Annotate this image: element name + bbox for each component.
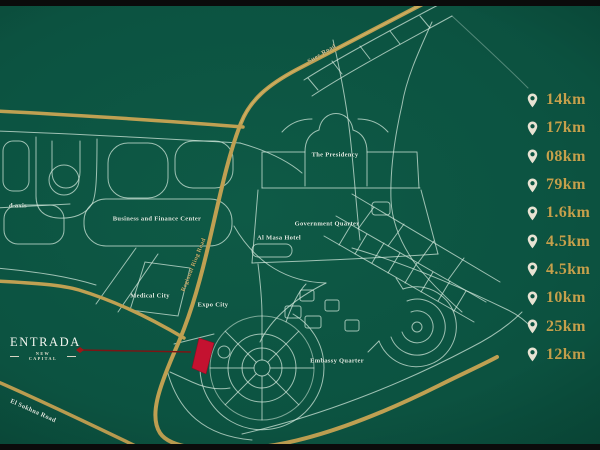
distance-list: 14km 17km 08km 79km 1.6km 4.5km 4.5km 1 <box>527 86 599 369</box>
map-pin-icon <box>527 121 538 136</box>
horseshoe-block <box>36 137 97 218</box>
distance-item: 1.6km <box>527 199 599 227</box>
expo-city-block <box>200 264 359 430</box>
letterbox-top <box>0 0 600 6</box>
distance-item: 4.5km <box>527 256 599 284</box>
axis-road-path <box>0 111 243 127</box>
entrada-plot-group <box>76 338 214 374</box>
distance-item: 4.5km <box>527 227 599 255</box>
distance-value: 17km <box>546 119 586 137</box>
entrada-location-map: Suez Road Regional Ring Road El Sokhna R… <box>0 0 600 450</box>
distance-value: 4.5km <box>546 261 590 279</box>
map-label-medical-city: Medical City <box>130 293 170 300</box>
sokhna-road-path <box>0 381 148 450</box>
distance-item: 17km <box>527 114 599 142</box>
street-grid <box>324 194 500 322</box>
map-label-al-masa-hotel: Al Masa Hotel <box>257 235 301 242</box>
map-pin-icon <box>527 178 538 193</box>
logo-ornament-right <box>67 356 76 357</box>
map-pin-icon <box>527 347 538 362</box>
map-label-government-quarter: Government Quarter <box>295 221 360 228</box>
entrada-logo-subtitle: NEW CAPITAL <box>22 351 64 361</box>
map-label-expo-city: Expo City <box>198 302 229 309</box>
map-pin-icon <box>527 149 538 164</box>
map-label-axis-partial: d axis <box>9 203 27 210</box>
map-pin-icon <box>527 234 538 249</box>
entrada-logo-title: ENTRADA <box>10 336 76 349</box>
presidency-block <box>305 114 367 187</box>
distance-value: 25km <box>546 318 586 336</box>
distance-item: 25km <box>527 312 599 340</box>
distance-value: 10km <box>546 289 586 307</box>
distance-value: 1.6km <box>546 204 590 222</box>
map-label-the-presidency: The Presidency <box>312 152 359 159</box>
distance-value: 08km <box>546 148 586 166</box>
distance-value: 12km <box>546 346 586 364</box>
distance-item: 79km <box>527 171 599 199</box>
logo-ornament-left <box>10 356 19 357</box>
distance-item: 10km <box>527 284 599 312</box>
map-pin-icon <box>527 93 538 108</box>
distance-value: 4.5km <box>546 233 590 251</box>
distance-value: 79km <box>546 176 586 194</box>
map-label-business-finance-center: Business and Finance Center <box>113 216 201 223</box>
distance-value: 14km <box>546 91 586 109</box>
map-label-embassy-quarter: Embassy Quarter <box>310 358 364 365</box>
map-pin-icon <box>527 291 538 306</box>
entrada-logo: ENTRADA NEW CAPITAL <box>10 336 76 361</box>
map-pin-icon <box>527 262 538 277</box>
entrada-plot-marker <box>192 338 214 374</box>
distance-item: 12km <box>527 341 599 369</box>
letterbox-bottom <box>0 444 600 450</box>
map-pin-icon <box>527 206 538 221</box>
government-quarter-block <box>421 190 438 254</box>
distance-item: 08km <box>527 143 599 171</box>
street-network <box>0 4 534 440</box>
west-gold-road-path <box>0 281 184 338</box>
distance-item: 14km <box>527 86 599 114</box>
map-pin-icon <box>527 319 538 334</box>
